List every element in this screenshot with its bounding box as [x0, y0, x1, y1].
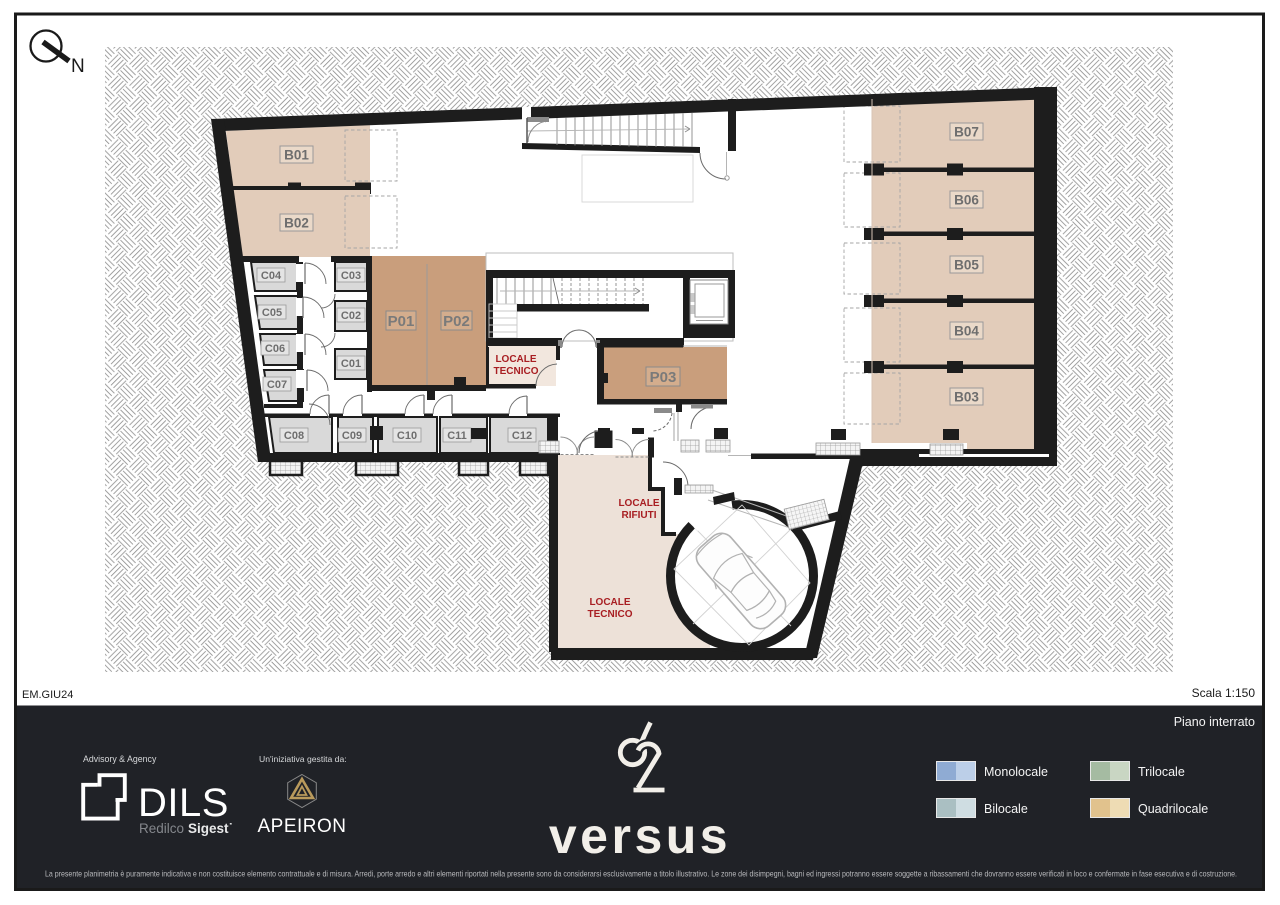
- svg-text:Redilco: Redilco: [139, 821, 184, 836]
- svg-text:C03: C03: [341, 270, 361, 282]
- svg-text:C01: C01: [341, 358, 361, 370]
- svg-text:La presente planimetria è pura: La presente planimetria è puramente indi…: [45, 870, 1237, 879]
- svg-text:C02: C02: [341, 310, 361, 322]
- svg-text:P02: P02: [443, 313, 470, 330]
- svg-text:Advisory & Agency: Advisory & Agency: [83, 754, 157, 764]
- svg-text:TECNICO: TECNICO: [588, 609, 633, 620]
- svg-text:C07: C07: [267, 379, 287, 391]
- svg-text:B07: B07: [954, 125, 979, 140]
- svg-text:Bilocale: Bilocale: [984, 802, 1028, 816]
- svg-text:LOCALE: LOCALE: [589, 597, 630, 608]
- svg-text:LOCALE: LOCALE: [618, 498, 659, 509]
- svg-text:versus: versus: [549, 808, 731, 864]
- svg-text:Un'iniziativa gestita da:: Un'iniziativa gestita da:: [259, 754, 347, 764]
- svg-text:C05: C05: [262, 307, 282, 319]
- svg-text:APEIRON: APEIRON: [257, 816, 346, 837]
- svg-text:Scala 1:150: Scala 1:150: [1192, 686, 1256, 700]
- svg-text:C09: C09: [342, 430, 362, 442]
- svg-text:B04: B04: [954, 324, 979, 339]
- svg-text:RIFIUTI: RIFIUTI: [622, 510, 657, 521]
- svg-text:B06: B06: [954, 193, 979, 208]
- svg-text:TECNICO: TECNICO: [494, 366, 539, 377]
- svg-text:C04: C04: [261, 270, 282, 282]
- svg-text:DILS: DILS: [138, 781, 229, 825]
- svg-text:Trilocale: Trilocale: [1138, 765, 1185, 779]
- svg-text:C06: C06: [265, 343, 285, 355]
- svg-text:C08: C08: [284, 430, 304, 442]
- svg-text:LOCALE: LOCALE: [495, 354, 536, 365]
- svg-text:Piano interrato: Piano interrato: [1174, 715, 1255, 729]
- svg-text:C11: C11: [447, 430, 467, 442]
- svg-text:C12: C12: [512, 430, 532, 442]
- svg-text:P01: P01: [388, 313, 415, 330]
- svg-text:B05: B05: [954, 258, 979, 273]
- svg-text:Sigest˙: Sigest˙: [188, 821, 233, 836]
- svg-text:Quadrilocale: Quadrilocale: [1138, 802, 1208, 816]
- svg-text:B01: B01: [284, 148, 309, 163]
- svg-text:EM.GIU24: EM.GIU24: [22, 689, 73, 701]
- svg-text:P03: P03: [650, 369, 677, 386]
- svg-text:N: N: [71, 56, 85, 77]
- svg-text:B03: B03: [954, 390, 979, 405]
- svg-text:C10: C10: [397, 430, 417, 442]
- svg-text:B02: B02: [284, 216, 309, 231]
- svg-text:Monolocale: Monolocale: [984, 765, 1048, 779]
